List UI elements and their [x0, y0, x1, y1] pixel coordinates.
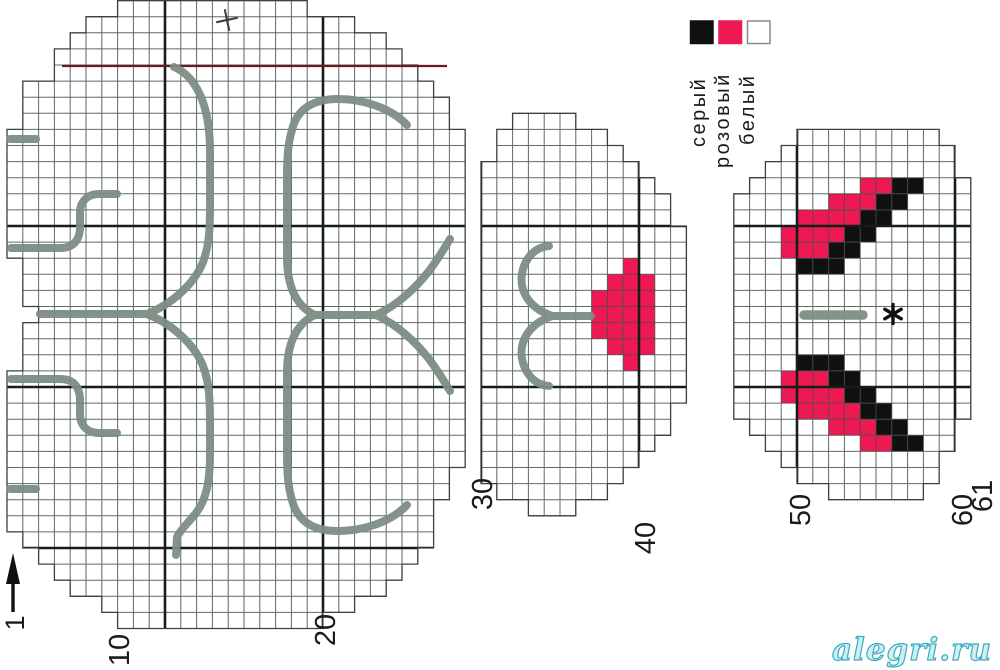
stitch-cell-pink [623, 274, 639, 290]
column-label-20: 20 [310, 614, 342, 646]
column-label-61: 61 [967, 480, 999, 512]
pattern-svg: 102030405060611серыйрозовыйбелый [0, 0, 1000, 670]
stitch-cell-pink [623, 355, 639, 371]
column-label-30: 30 [467, 478, 499, 510]
stitch-cell-pink [607, 290, 623, 306]
stitch-cell-black [844, 242, 860, 258]
stitch-cell-pink [639, 339, 655, 355]
stitch-cell-black [860, 226, 876, 242]
stitch-cell-pink [860, 194, 876, 210]
stitch-cell-pink [639, 323, 655, 339]
stitch-cell-black [829, 258, 845, 274]
stitch-cell-pink [781, 387, 797, 403]
stitch-cell-pink [607, 307, 623, 323]
stitch-cell-pink [797, 403, 813, 419]
stitch-cell-pink [829, 403, 845, 419]
stitch-cell-black [829, 355, 845, 371]
stitch-cell-pink [623, 339, 639, 355]
stitch-cell-black [797, 355, 813, 371]
stitch-cell-black [876, 194, 892, 210]
stitch-cell-pink [829, 226, 845, 242]
stitch-cell-pink [813, 242, 829, 258]
stitch-cell-black [829, 371, 845, 387]
stitch-cell-pink [844, 419, 860, 435]
stitch-cell-black [892, 419, 908, 435]
stitch-cell-black [908, 435, 924, 451]
column-label-40: 40 [630, 522, 662, 554]
stitch-cell-pink [844, 210, 860, 226]
stitch-cell-pink [813, 210, 829, 226]
legend-label-white: белый [737, 74, 759, 145]
stitch-cell-black [876, 419, 892, 435]
stitch-cell-pink [623, 290, 639, 306]
stitch-cell-pink [829, 210, 845, 226]
legend-swatch-gray [691, 21, 714, 44]
legend-swatch-white [748, 21, 771, 44]
stitch-cell-pink [829, 419, 845, 435]
column-label-50: 50 [785, 494, 817, 526]
stitch-cell-black [892, 435, 908, 451]
stitch-cell-pink [781, 242, 797, 258]
stitch-cell-pink [639, 290, 655, 306]
legend [691, 21, 771, 44]
stitch-cell-black [860, 387, 876, 403]
legend-label-gray: серый [688, 77, 710, 147]
stitch-cell-pink [623, 258, 639, 274]
stitch-cell-pink [607, 339, 623, 355]
stitch-cell-black [892, 178, 908, 194]
stitch-cell-black [860, 210, 876, 226]
stitch-cell-pink [607, 274, 623, 290]
stitch-cell-pink [639, 307, 655, 323]
stitch-cell-pink [797, 226, 813, 242]
stitch-cell-black [892, 194, 908, 210]
stitch-cell-pink [813, 226, 829, 242]
stitch-cell-black [844, 226, 860, 242]
legend-label-pink: розовый [712, 72, 734, 168]
stitch-cell-pink [797, 371, 813, 387]
stitch-cell-pink [829, 194, 845, 210]
stitch-cell-black [860, 403, 876, 419]
stitch-cell-pink [813, 371, 829, 387]
watermark: alegri.ru [832, 632, 992, 668]
stitch-cell-black [876, 210, 892, 226]
stitch-cell-black [844, 387, 860, 403]
row-label-1: 1 [0, 615, 30, 630]
stitch-cell-black [908, 178, 924, 194]
stitch-cell-pink [876, 178, 892, 194]
stitch-cell-black [813, 355, 829, 371]
stitch-cell-pink [813, 403, 829, 419]
stitch-cell-black [829, 242, 845, 258]
stitch-cell-black [876, 403, 892, 419]
stitch-cell-pink [844, 194, 860, 210]
cross-stitch-chart: 102030405060611серыйрозовыйбелый alegri.… [0, 0, 1000, 670]
stitch-cell-pink [876, 435, 892, 451]
stitch-cell-pink [829, 387, 845, 403]
stitch-cell-pink [592, 323, 608, 339]
stitch-cell-pink [860, 178, 876, 194]
stitch-cell-pink [844, 403, 860, 419]
stitch-cell-pink [860, 435, 876, 451]
stitch-cell-pink [623, 307, 639, 323]
legend-swatch-pink [719, 21, 742, 44]
stitch-cell-black [844, 371, 860, 387]
stitch-cell-black [797, 258, 813, 274]
stitch-cell-pink [607, 323, 623, 339]
stitch-cell-pink [797, 210, 813, 226]
stitch-cell-pink [781, 226, 797, 242]
stitch-cell-pink [639, 274, 655, 290]
stitch-cell-pink [797, 242, 813, 258]
stitch-cell-pink [781, 371, 797, 387]
stitch-cell-pink [623, 323, 639, 339]
stitch-cell-pink [592, 290, 608, 306]
stitch-cell-black [813, 258, 829, 274]
column-label-10: 10 [104, 634, 136, 666]
stitch-cell-pink [813, 387, 829, 403]
stitch-cell-pink [860, 419, 876, 435]
stitch-cell-pink [797, 387, 813, 403]
